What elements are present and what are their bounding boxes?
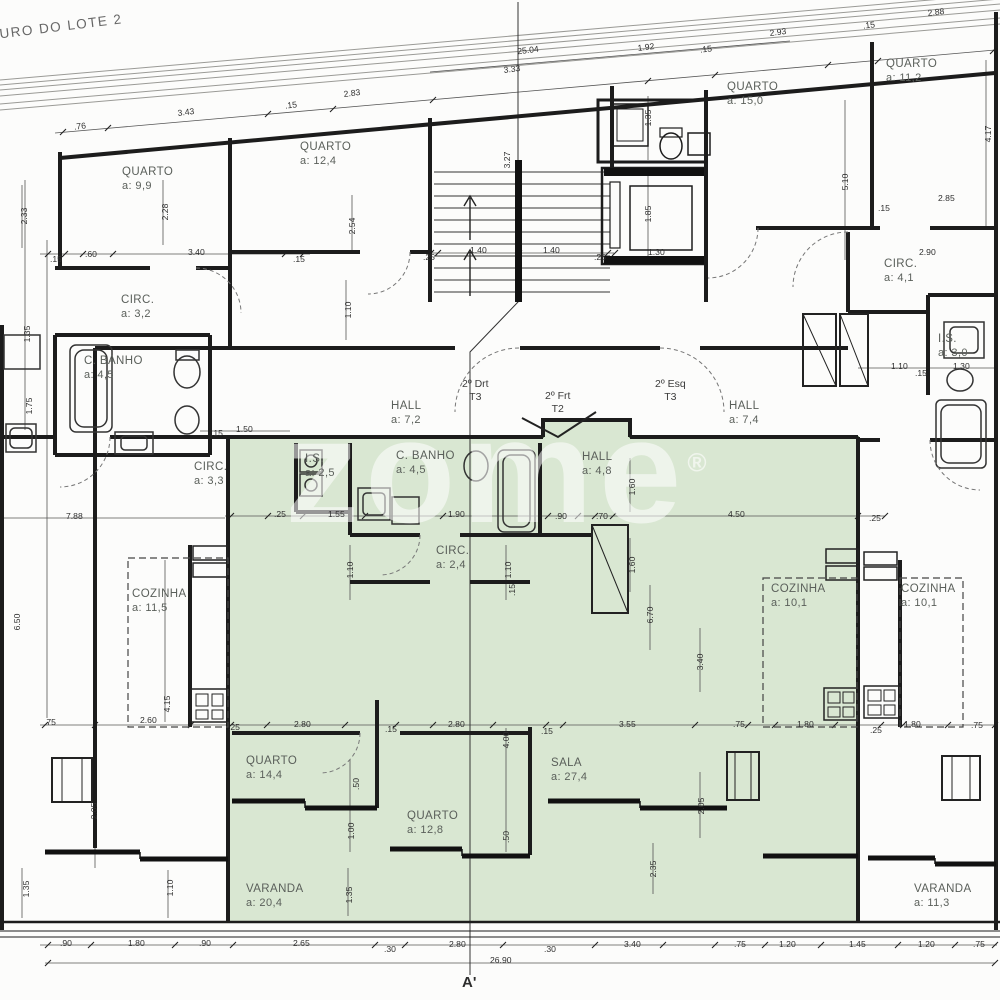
registered-mark: ® (687, 448, 712, 478)
bathroom-fixtures-right (936, 322, 986, 468)
varanda-rails (0, 922, 1000, 937)
elevator-core (598, 100, 710, 264)
section-marker: A' (462, 974, 476, 991)
stairwell (434, 160, 610, 302)
watermark: zome® (285, 398, 712, 546)
floor-plan: MURO DO LOTE 2 zome® A' QUARTOa: 9,9QUAR… (0, 0, 1000, 1000)
